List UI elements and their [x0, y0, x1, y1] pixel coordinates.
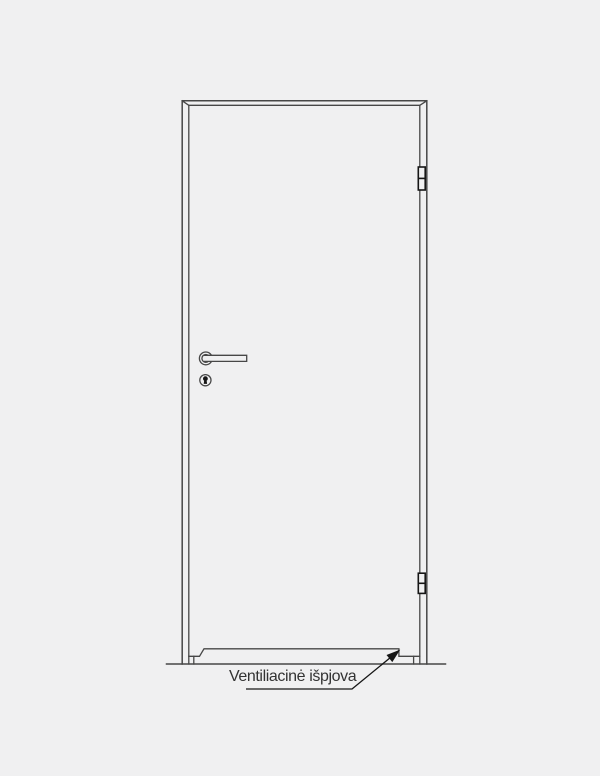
ventilation-label: Ventiliacinė išpjova	[229, 668, 356, 686]
top-hinge	[418, 167, 425, 190]
door-elevation-drawing: Ventiliacinė išpjova	[0, 0, 600, 776]
bottom-hinge	[418, 573, 425, 593]
door-leaf	[189, 105, 420, 664]
door-handle	[199, 352, 246, 365]
keyhole	[200, 375, 211, 386]
door-drawing-svg	[0, 0, 600, 776]
arrowhead-icon	[387, 650, 401, 663]
door-frame	[182, 101, 427, 664]
handle-lever	[205, 355, 247, 361]
